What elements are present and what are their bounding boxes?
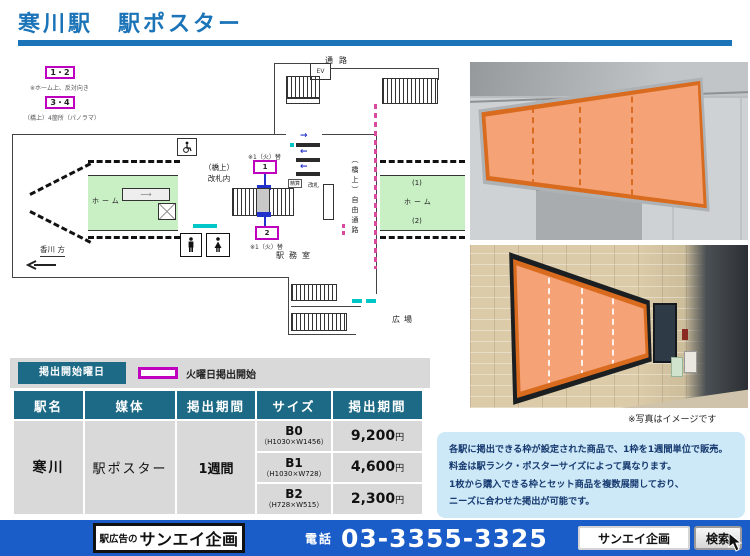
page-title: 寒川駅 駅ポスター bbox=[18, 6, 243, 38]
gate-arrow-left-icon: ← bbox=[300, 148, 308, 157]
info-line-1: 各駅に掲出できる枠が設定された商品で、1枠を1週間単位で販売。 bbox=[449, 441, 733, 458]
free-passage-label: （橋上）自由通路 bbox=[350, 156, 360, 301]
board1-divider bbox=[532, 76, 534, 216]
wall-line bbox=[274, 63, 311, 64]
ticket-machine-icon bbox=[366, 299, 376, 303]
photo2-white-sign bbox=[684, 351, 697, 373]
legend-title-box: 掲出開始曜日 bbox=[18, 362, 126, 384]
info-line-4: ニーズに合わせた掲出が可能です。 bbox=[449, 493, 733, 510]
map-frame-group-1-2-note: ※ホーム上、反対向き bbox=[30, 83, 89, 92]
poster-frame-2: 2 bbox=[255, 226, 279, 240]
col-header-size: サイズ bbox=[256, 390, 332, 420]
wall-line bbox=[288, 277, 289, 335]
poster-position-dashes bbox=[342, 224, 345, 238]
station-office-label: 駅務室 bbox=[276, 250, 315, 261]
phone-block: 電話 03-3355-3325 bbox=[305, 523, 548, 553]
elevator2-icon bbox=[158, 203, 176, 220]
track-dash bbox=[88, 160, 180, 163]
cell-media: 駅ポスター bbox=[84, 420, 176, 515]
gate-arrow-left-icon: ← bbox=[300, 163, 308, 172]
toilet-male-icon bbox=[180, 233, 202, 257]
company-logo: 駅広告の サンエイ企画 bbox=[93, 523, 245, 553]
map-frame-group-3-4: 3・4 bbox=[45, 96, 75, 109]
phone-label: 電話 bbox=[305, 530, 333, 547]
poster-board-photo1 bbox=[476, 76, 712, 216]
gate-label: 改札 bbox=[308, 181, 319, 189]
poster-frame-1: 1 bbox=[253, 160, 277, 174]
wall-line bbox=[274, 63, 275, 134]
fare-adjust-box: 精算 bbox=[288, 179, 302, 188]
col-header-media: 媒体 bbox=[84, 390, 176, 420]
photo2-red-box bbox=[682, 329, 688, 340]
cell-station: 寒川 bbox=[13, 420, 84, 515]
track-dash bbox=[380, 236, 465, 239]
footer-bar: 駅広告の サンエイ企画 電話 03-3355-3325 サンエイ企画 検索 bbox=[0, 520, 750, 556]
flyer-page: 寒川駅 駅ポスター 1・2 ※ホーム上、反対向き 3・4 （橋上）4箇所（パノラ… bbox=[0, 0, 750, 556]
poster-board-photo2 bbox=[504, 247, 660, 407]
track-dash bbox=[380, 160, 465, 163]
map-frame-group-1-2: 1・2 bbox=[45, 66, 75, 79]
photo-caption: ※写真はイメージです bbox=[628, 412, 716, 425]
ticket-machine-icon bbox=[352, 299, 362, 303]
toilet-female-icon bbox=[206, 233, 230, 257]
fountain-icon bbox=[193, 224, 217, 228]
cell-price-b1: 4,600円 bbox=[332, 452, 423, 484]
photo-station-wall-board bbox=[470, 62, 748, 240]
board2-divider bbox=[612, 247, 614, 407]
wall-line bbox=[12, 134, 286, 135]
platform-right-label: ホーム bbox=[404, 197, 434, 207]
map-frame-group-3-4-note: （橋上）4箇所（パノラマ） bbox=[24, 113, 100, 122]
platform-left-label: ホーム bbox=[92, 196, 122, 206]
track-dash bbox=[29, 210, 91, 244]
product-info-box: 各駅に掲出できる枠が設定された商品で、1枠を1週間単位で販売。 料金は駅ランク・… bbox=[437, 432, 745, 518]
plaza-label: 広場 bbox=[392, 314, 416, 325]
stairs-lower-2-icon bbox=[291, 313, 347, 331]
cell-price-b0: 9,200円 bbox=[332, 420, 423, 452]
cell-price-b2: 2,300円 bbox=[332, 483, 423, 515]
ic-reader-icon bbox=[290, 143, 294, 147]
stairs-upper-left-icon bbox=[286, 76, 320, 98]
info-line-3: 1枚から購入できる枠とセット商品を複数展開しており、 bbox=[449, 476, 733, 493]
magenta-frame-icon bbox=[138, 367, 178, 379]
title-underline bbox=[18, 40, 732, 46]
track-dash bbox=[88, 236, 180, 239]
col-header-price: 掲出期間 bbox=[332, 390, 423, 420]
direction-arrow-icon bbox=[26, 255, 56, 274]
wall-line bbox=[12, 277, 289, 278]
wall-line bbox=[291, 306, 361, 307]
cell-size-b2: B2 （H728×W515） bbox=[256, 483, 332, 515]
stairs-landing bbox=[286, 98, 320, 104]
wall-line bbox=[322, 134, 376, 135]
search-input[interactable]: サンエイ企画 bbox=[578, 526, 690, 550]
col-header-station: 駅名 bbox=[13, 390, 84, 420]
wall-line bbox=[288, 334, 356, 335]
frame2-arrow bbox=[264, 216, 266, 226]
gate-bar bbox=[296, 172, 320, 176]
station-map: 1・2 ※ホーム上、反対向き 3・4 （橋上）4箇所（パノラマ） 通路 EV →… bbox=[10, 52, 465, 358]
wall-line bbox=[438, 68, 439, 80]
info-line-2: 料金は駅ランク・ポスターサイズによって異なります。 bbox=[449, 458, 733, 475]
legend-description: 火曜日掲出開始 bbox=[186, 366, 256, 381]
platform-no1-label: (1) bbox=[412, 179, 422, 187]
phone-number: 03-3355-3325 bbox=[341, 524, 548, 553]
stairs-upper-right-icon bbox=[382, 78, 438, 104]
photo2-green-sign bbox=[671, 357, 683, 377]
wheelchair-icon bbox=[177, 138, 197, 156]
wall-line bbox=[12, 134, 13, 278]
platform-no2-label: (2) bbox=[412, 217, 422, 225]
cell-period: 1週間 bbox=[176, 420, 256, 515]
wall-line bbox=[330, 68, 439, 69]
concourse-label: （橋上） 改札内 bbox=[194, 162, 244, 185]
price-table: 駅名 媒体 掲出期間 サイズ 掲出期間 寒川 駅ポスター 1週間 B0 （H10… bbox=[13, 390, 423, 515]
track-dash bbox=[29, 162, 91, 196]
escalator-icon: ⟶ bbox=[122, 188, 170, 201]
cell-size-b1: B1 （H1030×W728） bbox=[256, 452, 332, 484]
cursor-icon bbox=[728, 532, 744, 556]
poster-position-dashes bbox=[374, 104, 377, 269]
photo2-dark-corridor bbox=[684, 245, 748, 408]
kiosk-box bbox=[323, 184, 334, 220]
cell-size-b0: B0 （H1030×W1456） bbox=[256, 420, 332, 452]
col-header-period: 掲出期間 bbox=[176, 390, 256, 420]
legend-strip: 掲出開始曜日 火曜日掲出開始 bbox=[10, 358, 430, 388]
stairs-lower-1-icon bbox=[291, 284, 337, 301]
photo-brick-wall-board bbox=[470, 245, 748, 408]
gate-arrow-right-icon: → bbox=[300, 132, 308, 141]
